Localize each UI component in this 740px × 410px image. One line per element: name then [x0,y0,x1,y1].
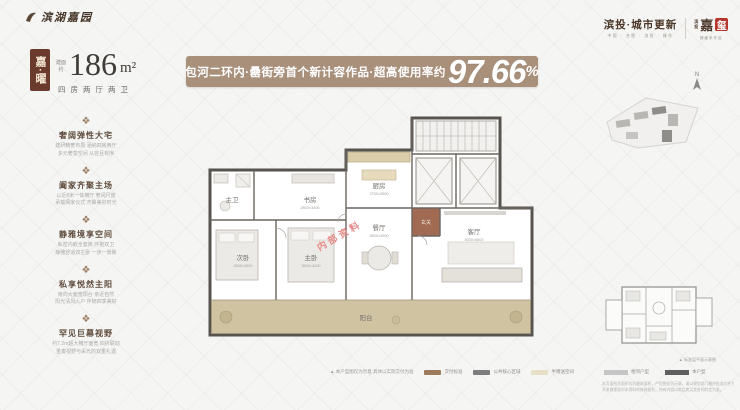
room-label: 餐厅 [373,223,387,232]
legend-item: 公共核心区域 [473,369,520,375]
feature-item: ❖ 罕见巨幕视野 约7.2m超大横厅面宽 四折联动 重奏视野与采光的双重礼遇 [18,315,154,357]
feature-title: 罕见巨幕视野 [59,328,113,339]
plan-legend: ▲ 本户型图仅为示意 具体以实际交付为准 交付标准 公共核心区域 半赠送空间 [330,369,574,375]
usage-rate-percent-sign: % [525,63,538,80]
unit-info: 嘉·曜 建面 约 186 m² 四房两厅两卫 [30,49,136,95]
headline-text: 包河二环内·罍街旁首个新计容作品·超高使用率约 [185,64,446,80]
ornament-icon: ❖ [82,315,91,325]
room-dim: 3300×3600 [233,264,252,268]
calligraphy-flourish-icon [24,10,38,24]
seal-logo: 滨 投 嘉 玺 臻藏系作品 [694,15,728,41]
brand-lockup: 滨投·城市更新 中国 · 合肥 · 滨投 · 臻作 滨 投 嘉 玺 臻藏系作品 [596,15,736,41]
disclaimer-line: 开发商保留对本资料的修改权利，所有内容以商品房买卖合同约定为准。 [602,387,734,393]
ornament-icon: ❖ [82,167,91,177]
site-plan-thumbnail [604,90,702,165]
unit-area-unit: m² [120,60,136,79]
seal-subtitle: 臻藏系作品 [700,36,723,41]
room-label: 玄关 [421,219,431,226]
room-label: 次卧 [237,253,251,262]
seal-char-red: 玺 [715,18,728,31]
key-plan-legend: 相邻户型 本户型 [604,369,706,375]
legend-item: 半赠送空间 [531,369,574,375]
feature-line: 约7.2m超大横厅面宽 四折联动 [52,341,120,349]
usage-rate-value: 97.66 [448,55,526,88]
feature-item: ❖ 私享悦然主阳 南向大面宽阳台 亲近自然 阳光清风入户 伴随四季美好 [18,266,154,308]
feature-line: 私密内嵌全套房 环抱双卫 [58,242,114,250]
compass: N [692,72,702,91]
legend-item: 相邻户型 [604,369,649,375]
site-plan-drawing [604,90,702,160]
legend-swatch [604,370,628,375]
unit-name-badge: 嘉·曜 [30,49,50,91]
disclaimer: 本页面所涉面积均为建筑面积，户型图仅为示意，请以规划部门最终批准文件为准； 开发… [602,381,734,393]
legend-label: 半赠送空间 [551,369,574,375]
room-dim: 3600×4200 [301,264,320,268]
seal-char: 嘉 [700,15,713,34]
room-label: 主卫 [226,195,240,204]
legend-label: 本户型 [692,369,706,375]
feature-item: ❖ 奢阔弹性大宅 建研精奢布局 涵纳四房两厅 多元奢享空间 从容且有序 [18,117,154,159]
feature-line: 重奏视野与采光的双重礼遇 [56,349,116,357]
floor-plan-drawing: 厨房 2700×3600 餐厅 2800×3900 客厅 4500×6800 主… [196,110,564,365]
area-prefix-bottom: 约 [56,67,66,74]
feature-line: 建研精奢布局 涵纳四房两厅 [55,143,116,151]
ornament-icon: ❖ [82,216,91,226]
feature-list: ❖ 奢阔弹性大宅 建研精奢布局 涵纳四房两厅 多元奢享空间 从容且有序 ❖ 阖家… [18,117,154,357]
room-dim: 2700×3600 [369,192,388,196]
key-plan-caption: ▲ 标准层平面示意图 [602,357,716,363]
brand-primary-text: 滨投·城市更新 [604,17,678,32]
feature-line: 静雅舒适双主卧 一步一景致 [55,250,116,258]
feature-title: 奢阔弹性大宅 [59,130,113,141]
legend-item: 交付标准 [424,369,462,375]
ornament-icon: ❖ [82,266,91,276]
unit-area-value: 186 [69,49,117,79]
plan-legend-note: ▲ 本户型图仅为示意 具体以实际交付为准 [330,369,413,375]
project-logo: 滨湖嘉园 [24,9,93,25]
key-plan-thumbnail [602,282,716,359]
room-label: 主卧 [305,253,319,262]
poster: 滨湖嘉园 嘉·曜 建面 约 186 m² 四房两厅两卫 包河二环内·罍街旁首个新… [0,0,740,410]
feature-item: ❖ 阖家齐聚主场 以近8米一体横厅 奢阔尺度 承载阖家仪式 齐聚美好时光 [18,167,154,209]
feature-line: 承载阖家仪式 齐聚美好时光 [55,200,116,208]
room-dim: 2800×3900 [369,234,388,238]
legend-item: 本户型 [665,369,706,375]
area-prefix: 建面 约 [56,60,66,79]
feature-line: 多元奢享空间 从容且有序 [58,151,114,159]
room-label: 书房 [304,195,317,204]
unit-layout-text: 四房两厅两卫 [56,84,136,95]
brand-divider [685,18,686,39]
feature-item: ❖ 静雅境享空间 私密内嵌全套房 环抱双卫 静雅舒适双主卧 一步一景致 [18,216,154,258]
ornament-icon: ❖ [82,117,91,127]
seal-prefix: 滨 投 [694,20,698,29]
key-plan-drawing [602,282,716,354]
legend-label: 相邻户型 [631,369,649,375]
room-label: 厨房 [373,181,386,190]
feature-title: 阖家齐聚主场 [59,180,113,191]
main-floor-plan: 厨房 2700×3600 餐厅 2800×3900 客厅 4500×6800 主… [196,110,564,365]
legend-label: 交付标准 [444,369,462,375]
headline-banner: 包河二环内·罍街旁首个新计容作品·超高使用率约 97.66 % [186,56,538,87]
room-label: 客厅 [468,227,482,236]
seal-prefix-bottom: 投 [694,25,698,29]
legend-swatch [531,370,548,375]
project-logo-text: 滨湖嘉园 [41,9,93,25]
room-dim: 2800×3300 [300,206,319,210]
room-label: 阳台 [360,313,373,322]
feature-line: 阳光清风入户 伴随四季美好 [55,299,116,307]
legend-swatch [665,370,689,375]
room-dim: 4500×6800 [464,238,483,242]
legend-swatch [424,370,441,375]
brand-subtitle: 中国 · 合肥 · 滨投 · 臻作 [607,34,673,39]
legend-swatch [473,370,490,375]
feature-title: 私享悦然主阳 [59,279,113,290]
feature-title: 静雅境享空间 [59,229,113,240]
legend-label: 公共核心区域 [493,369,520,375]
